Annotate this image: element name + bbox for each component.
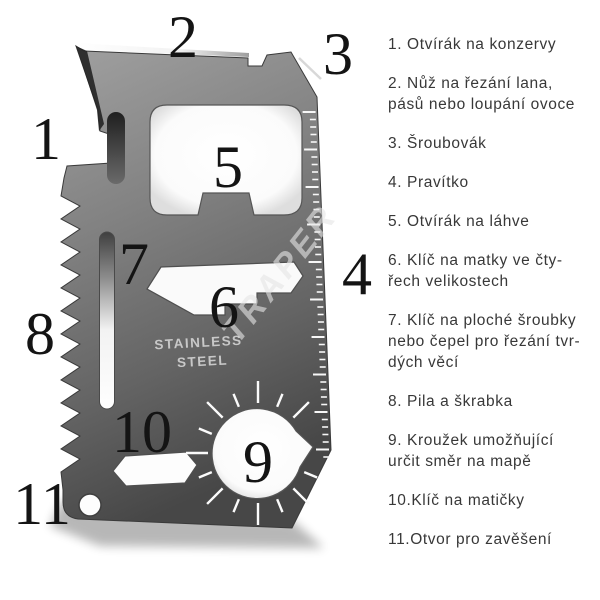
legend-line: určit směr na mapě: [388, 451, 598, 472]
legend-item-10: 10.Klíč na matičky: [388, 490, 598, 511]
legend-item-5: 5. Otvírák na láhve: [388, 211, 598, 232]
legend-line: 11.Otvor pro zavěšení: [388, 529, 598, 550]
legend-item-4: 4. Pravítko: [388, 172, 598, 193]
legend-item-1: 1. Otvírák na konzervy: [388, 34, 598, 55]
legend-line: 6. Klíč na matky ve čty-: [388, 250, 598, 271]
callout-11: 11: [13, 474, 71, 534]
legend-line: řech velikostech: [388, 271, 598, 292]
legend-line: nebo čepel pro řezání tvr-: [388, 331, 598, 352]
callout-1: 1: [31, 109, 61, 169]
legend-item-3: 3. Šroubovák: [388, 133, 598, 154]
callout-3: 3: [323, 24, 353, 84]
callout-8: 8: [25, 304, 55, 364]
legend-item-9: 9. Kroužek umožňující určit směr na mapě: [388, 430, 598, 472]
legend-item-8: 8. Pila a škrabka: [388, 391, 598, 412]
legend-line: dých věcí: [388, 352, 598, 373]
legend-item-11: 11.Otvor pro zavěšení: [388, 529, 598, 550]
callout-2: 2: [168, 7, 198, 67]
legend-list: 1. Otvírák na konzervy 2. Nůž na řezání …: [388, 34, 598, 568]
legend-line: 3. Šroubovák: [388, 133, 598, 154]
callout-4: 4: [342, 244, 372, 304]
annotated-multitool-figure: STAINLESS STEEL TRAPER 1 2 3 4 5 6 7 8 9…: [0, 0, 600, 600]
callout-5: 5: [213, 137, 243, 197]
callout-7: 7: [119, 234, 149, 294]
legend-line: 8. Pila a škrabka: [388, 391, 598, 412]
callout-10: 10: [112, 402, 172, 462]
legend-item-6: 6. Klíč na matky ve čty- řech velikostec…: [388, 250, 598, 292]
legend-line: 5. Otvírák na láhve: [388, 211, 598, 232]
legend-line: 7. Klíč na ploché šroubky: [388, 310, 598, 331]
legend-line: 4. Pravítko: [388, 172, 598, 193]
legend-item-2: 2. Nůž na řezání lana, pásů nebo loupání…: [388, 73, 598, 115]
can-opener-groove: [107, 112, 125, 184]
flat-blade-slot: [100, 232, 115, 409]
legend-line: pásů nebo loupání ovoce: [388, 94, 598, 115]
engraving-line2: STEEL: [177, 353, 229, 371]
legend-line: 1. Otvírák na konzervy: [388, 34, 598, 55]
callout-6: 6: [209, 277, 239, 337]
legend-line: 10.Klíč na matičky: [388, 490, 598, 511]
callout-9: 9: [243, 432, 273, 492]
hanging-hole: [79, 494, 101, 516]
legend-item-7: 7. Klíč na ploché šroubky nebo čepel pro…: [388, 310, 598, 373]
legend-line: 9. Kroužek umožňující: [388, 430, 598, 451]
legend-line: 2. Nůž na řezání lana,: [388, 73, 598, 94]
